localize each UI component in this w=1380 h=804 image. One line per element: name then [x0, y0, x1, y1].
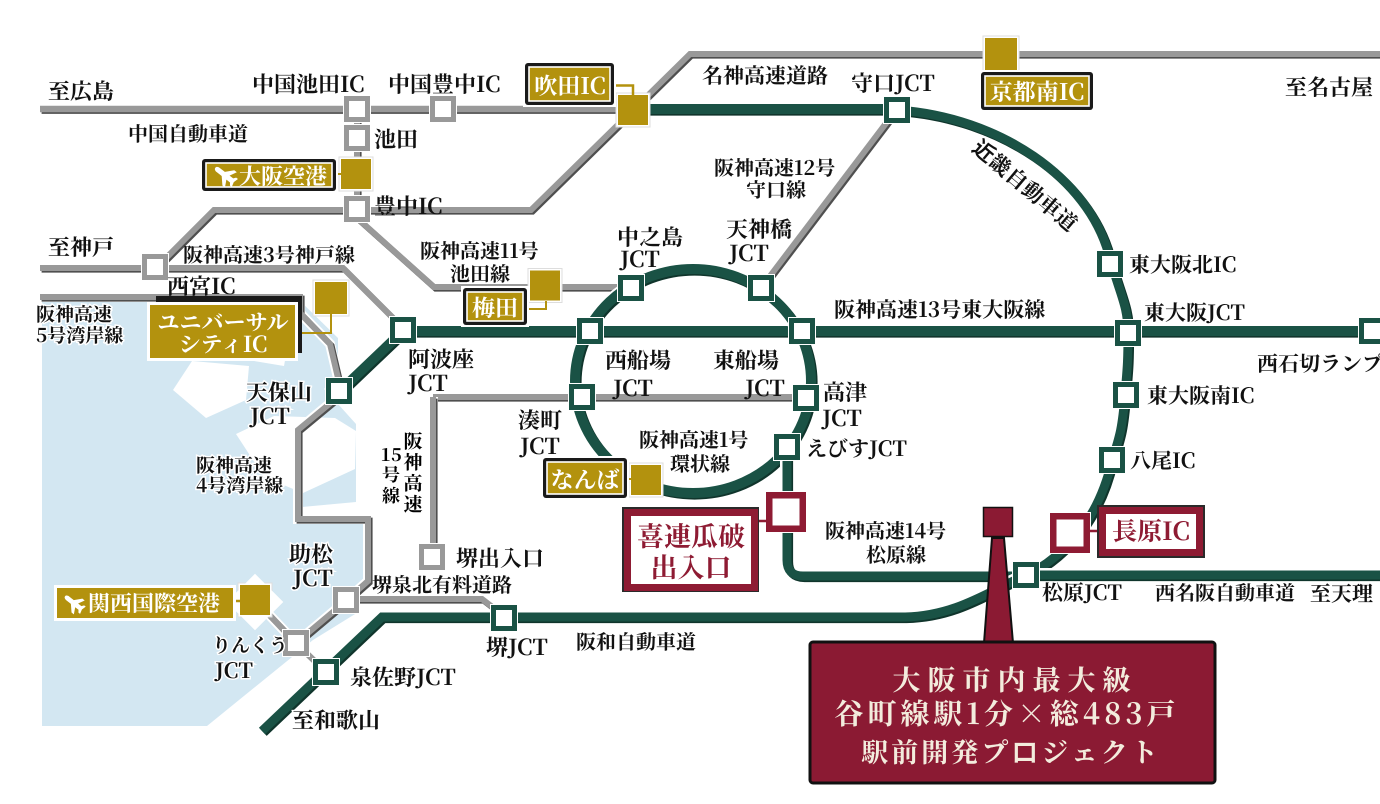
svg-text:谷町線駅1分×総483戸: 谷町線駅1分×総483戸 [834, 692, 1179, 733]
svg-text:堺泉北有料道路: 堺泉北有料道路 [372, 569, 512, 598]
svg-text:西船場: 西船場 [605, 344, 671, 375]
svg-text:JCT: JCT [728, 237, 769, 268]
svg-text:JCT: JCT [407, 367, 448, 398]
svg-text:駅前開発プロジェクト: 駅前開発プロジェクト [861, 731, 1160, 770]
svg-text:東大阪北IC: 東大阪北IC [1129, 249, 1236, 279]
svg-text:線: 線 [382, 482, 400, 508]
svg-text:JCT: JCT [821, 402, 862, 433]
svg-text:西名阪自動車道: 西名阪自動車道 [1155, 577, 1295, 606]
svg-text:至名古屋: 至名古屋 [1285, 71, 1373, 102]
svg-text:速: 速 [403, 490, 422, 517]
svg-text:長原IC: 長原IC [1112, 512, 1190, 548]
svg-text:JCT: JCT [249, 400, 290, 431]
svg-text:4号湾岸線: 4号湾岸線 [196, 471, 283, 498]
svg-text:出入口: 出入口 [651, 546, 732, 585]
svg-text:京都南IC: 京都南IC [990, 74, 1085, 107]
svg-text:大阪空港: 大阪空港 [239, 160, 327, 191]
svg-text:泉佐野JCT: 泉佐野JCT [350, 661, 456, 692]
svg-text:東船場: 東船場 [713, 344, 779, 375]
svg-text:八尾IC: 八尾IC [1130, 445, 1195, 475]
svg-text:至広島: 至広島 [48, 75, 114, 106]
svg-text:池田線: 池田線 [450, 258, 510, 287]
svg-text:阪神高速13号東大阪線: 阪神高速13号東大阪線 [834, 294, 1045, 324]
svg-text:西石切ランプ: 西石切ランプ [1257, 348, 1380, 378]
svg-text:池田: 池田 [374, 123, 418, 154]
svg-text:守口JCT: 守口JCT [851, 67, 935, 98]
svg-text:関西国際空港: 関西国際空港 [88, 587, 220, 618]
svg-text:松原JCT: 松原JCT [1042, 577, 1122, 607]
svg-text:なんば: なんば [551, 462, 620, 495]
svg-text:環状線: 環状線 [670, 448, 730, 477]
svg-text:至天理: 至天理 [1310, 578, 1373, 608]
svg-text:松原線: 松原線 [866, 539, 926, 568]
svg-text:JCT: JCT [214, 655, 253, 685]
svg-text:至神戸: 至神戸 [48, 231, 114, 262]
svg-text:阪神高速3号神戸線: 阪神高速3号神戸線 [183, 239, 355, 268]
svg-text:東大阪JCT: 東大阪JCT [1144, 297, 1245, 327]
svg-text:中国池田IC: 中国池田IC [252, 68, 364, 99]
svg-text:東大阪南IC: 東大阪南IC [1147, 380, 1254, 410]
svg-text:豊中IC: 豊中IC [374, 190, 442, 221]
svg-text:阪和自動車道: 阪和自動車道 [576, 626, 696, 655]
svg-text:シティIC: シティIC [179, 328, 268, 359]
svg-text:至和歌山: 至和歌山 [292, 704, 380, 735]
svg-text:梅田: 梅田 [472, 290, 518, 323]
svg-text:中国自動車道: 中国自動車道 [128, 118, 248, 147]
svg-text:名神高速道路: 名神高速道路 [702, 60, 828, 90]
svg-text:JCT: JCT [292, 562, 333, 593]
svg-text:JCT: JCT [619, 243, 660, 274]
svg-text:中国豊中IC: 中国豊中IC [388, 68, 500, 99]
svg-text:吹田IC: 吹田IC [534, 68, 606, 101]
svg-text:守口線: 守口線 [746, 174, 806, 203]
svg-text:JCT: JCT [744, 372, 785, 403]
svg-text:堺JCT: 堺JCT [486, 631, 548, 662]
svg-text:えびすJCT: えびすJCT [806, 433, 907, 463]
svg-text:りんくう: りんくう [212, 631, 288, 658]
svg-text:5号湾岸線: 5号湾岸線 [36, 321, 123, 348]
svg-text:JCT: JCT [612, 372, 653, 403]
